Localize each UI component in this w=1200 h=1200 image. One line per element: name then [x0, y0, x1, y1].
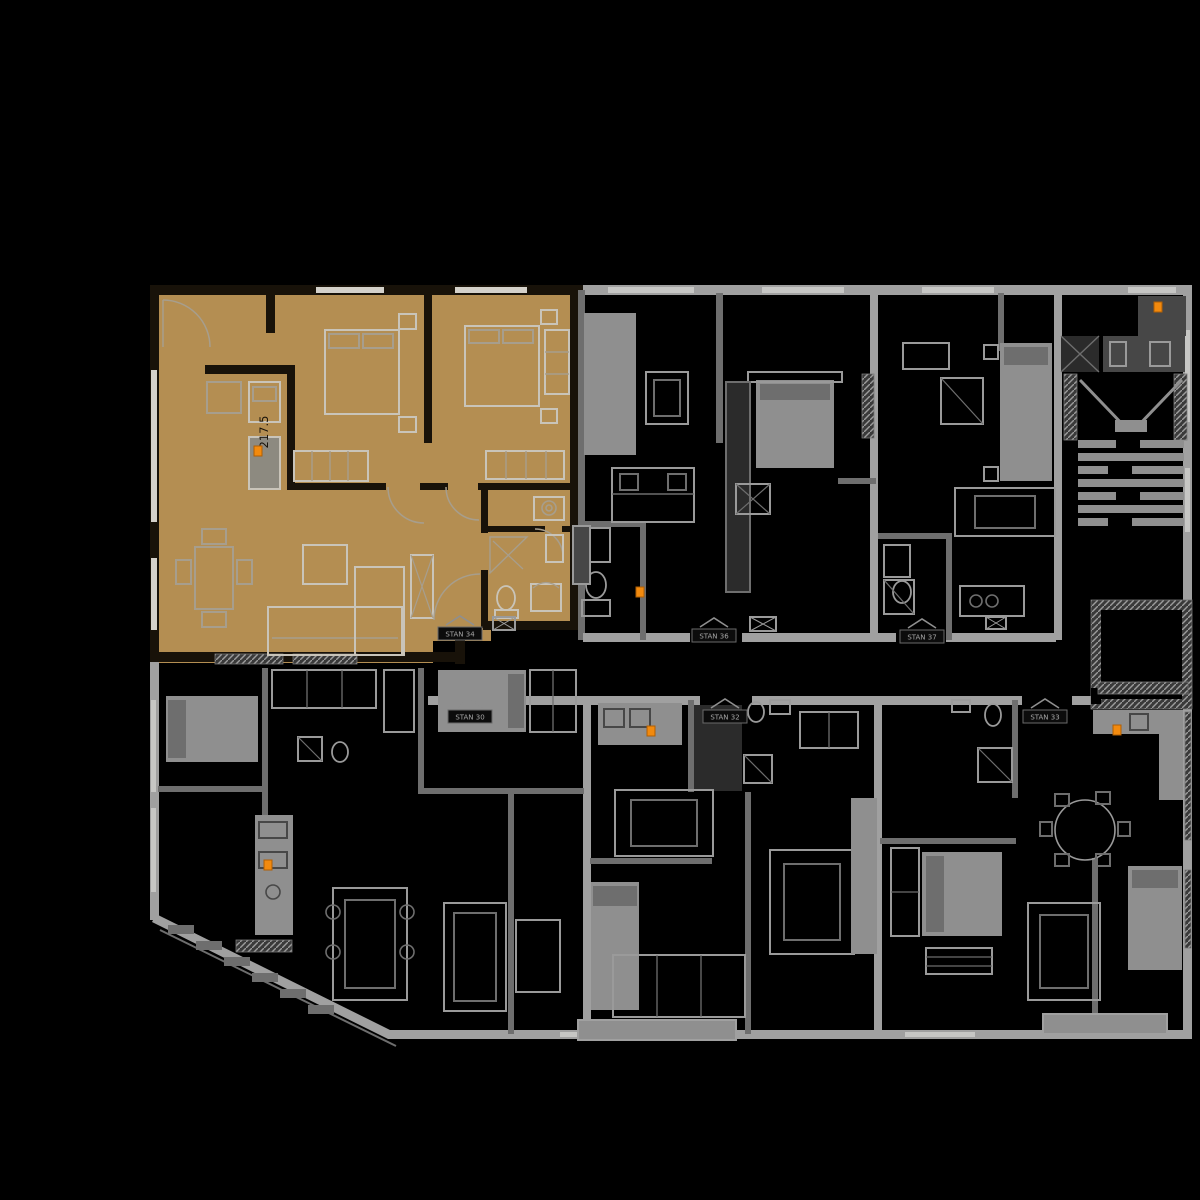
- nightstand: [984, 467, 998, 481]
- dining-table-inner: [631, 800, 697, 846]
- area-label: 217.5: [257, 416, 271, 449]
- floor-plan-canvas: 217.5 STAN 34STAN 36STAN 37STAN 30STAN 3…: [0, 0, 1200, 1200]
- terrace-slab: [1043, 1014, 1167, 1034]
- tan-window-left-2: [151, 558, 157, 630]
- plaque-label: STAN 37: [907, 634, 936, 642]
- tan-wall-bedrooms-a: [294, 483, 386, 490]
- partition: [946, 533, 952, 640]
- sofa-inner: [454, 913, 496, 1001]
- stair-side-hatch: [1064, 374, 1077, 440]
- bed-pillow: [593, 886, 637, 906]
- dining-chair: [1118, 822, 1130, 836]
- partition: [838, 478, 876, 484]
- tan-wall-bedrooms-b: [420, 483, 448, 490]
- marker-bottom-left-kitchen[interactable]: [264, 860, 272, 870]
- marker-highlight-kitchen[interactable]: [254, 446, 262, 456]
- closet: [903, 343, 949, 369]
- plaque-label: STAN 32: [710, 714, 739, 722]
- stair-side-hatch: [1174, 374, 1187, 440]
- plaque-label: STAN 34: [445, 631, 475, 639]
- shower-diag: [298, 737, 322, 761]
- partition: [262, 668, 268, 818]
- stove: [620, 474, 638, 490]
- tan-wall-bath-left-a: [481, 483, 488, 533]
- stair-step-notch: [1108, 518, 1132, 526]
- sink: [668, 474, 686, 490]
- bed-pillow: [760, 384, 830, 400]
- shower-diag: [978, 748, 1012, 782]
- plaque-label: STAN 30: [455, 714, 484, 722]
- tan-wall-entry: [455, 640, 465, 664]
- table-round: [1055, 800, 1115, 860]
- balcony-rail: [1185, 870, 1191, 948]
- exterior-step: [224, 957, 250, 966]
- plaque-label: STAN 33: [1030, 714, 1059, 722]
- bed-pillow: [508, 674, 524, 728]
- shower-diag: [744, 755, 772, 783]
- window-bottom: [905, 1032, 975, 1037]
- balcony-rail: [1098, 682, 1188, 694]
- tan-wall-bath-left-b: [481, 570, 488, 628]
- plaque-label: STAN 36: [699, 633, 729, 641]
- bed-pillow: [1004, 347, 1048, 365]
- corridor-wall-top: [583, 633, 1056, 642]
- nightstand: [984, 345, 998, 359]
- bed-pillow: [168, 700, 186, 758]
- stair-center-block: [1115, 420, 1147, 432]
- tan-wall-hall: [205, 365, 293, 374]
- unit-plaque-unit-top-middle: STAN 36: [692, 618, 736, 642]
- kitchen-counter: [612, 468, 694, 522]
- partition: [590, 858, 712, 864]
- dining-table-inner: [654, 380, 680, 416]
- sofa: [1028, 903, 1100, 1000]
- dining-chair: [1096, 854, 1110, 866]
- tan-wall-bedroom-divider: [424, 288, 432, 443]
- window-top: [1128, 287, 1176, 293]
- dining-table-inner: [975, 496, 1035, 528]
- window-right: [1185, 468, 1190, 532]
- partition: [878, 533, 950, 539]
- tan-window-top-1: [316, 287, 384, 293]
- marker-stair-vestibule[interactable]: [1154, 302, 1162, 312]
- burner: [986, 595, 998, 607]
- stair-step: [1078, 453, 1184, 461]
- partition: [998, 293, 1004, 351]
- dining-chair: [1040, 822, 1052, 836]
- partition: [424, 788, 584, 794]
- exterior-step: [280, 989, 306, 998]
- marker-bottom-middle-kitchen[interactable]: [647, 726, 655, 736]
- window-left: [151, 700, 156, 792]
- sofa: [770, 850, 854, 954]
- marker-bottom-right-kitchen[interactable]: [1113, 725, 1121, 735]
- party-wall: [870, 293, 878, 640]
- exterior-step: [252, 973, 278, 982]
- radiator: [926, 948, 992, 974]
- tan-window-top-2: [455, 287, 527, 293]
- shaft-hatch: [862, 374, 874, 438]
- bath-fixture: [582, 600, 610, 616]
- plaque-chevron-icon: [700, 618, 728, 627]
- stair-step: [1078, 479, 1184, 487]
- partition: [880, 838, 1016, 844]
- toilet-bowl: [985, 704, 1001, 726]
- terrace-slab: [578, 1020, 736, 1040]
- toilet-bowl: [332, 742, 348, 762]
- wardrobe-diag: [941, 378, 983, 424]
- sofa-chaise: [851, 798, 877, 954]
- wardrobe: [272, 670, 376, 708]
- stair-step-notch: [1116, 492, 1140, 500]
- stair-step-notch: [1108, 466, 1132, 474]
- marker-top-middle-kitchen[interactable]: [636, 587, 644, 597]
- window-top: [922, 287, 994, 293]
- sofa-inner: [784, 864, 840, 940]
- partition: [716, 293, 723, 443]
- tan-wall-hall-stub: [266, 285, 275, 333]
- stair-step: [1078, 505, 1184, 513]
- exterior-step: [168, 925, 194, 934]
- corridor-duct: [573, 526, 590, 584]
- bed-pillow: [1132, 870, 1178, 888]
- party-wall: [578, 290, 585, 640]
- partition: [418, 668, 424, 794]
- tan-wall-bath-bottom: [483, 621, 578, 630]
- stair-step-notch: [1116, 440, 1140, 448]
- party-wall: [1054, 293, 1062, 640]
- sofa: [584, 313, 636, 455]
- kitchen-counter: [1159, 734, 1183, 800]
- entry-mat: [236, 940, 292, 952]
- exterior-step: [308, 1005, 334, 1014]
- partition: [640, 521, 646, 640]
- desk: [384, 670, 414, 732]
- corridor-wall-bottom: [428, 696, 1190, 705]
- balcony-rail: [1185, 712, 1191, 840]
- plaque-chevron-icon: [908, 619, 936, 628]
- side-table: [516, 920, 560, 992]
- hall-strip: [726, 382, 750, 592]
- tan-wall-bedrooms-c: [478, 483, 574, 490]
- tan-window-left-1: [151, 370, 157, 522]
- sofa-inner: [1040, 915, 1088, 988]
- exterior-step: [196, 941, 222, 950]
- partition: [158, 786, 266, 792]
- party-wall-lower: [583, 700, 591, 1030]
- floor-plan-svg: 217.5 STAN 34STAN 36STAN 37STAN 30STAN 3…: [0, 0, 1200, 1200]
- dining-table-inner: [345, 900, 395, 988]
- unit-plaque-unit-top-right: STAN 37: [900, 619, 944, 643]
- burner: [970, 595, 982, 607]
- partition: [1092, 858, 1098, 1034]
- partition: [688, 700, 694, 792]
- bed-pillow: [926, 856, 944, 932]
- partition: [508, 794, 514, 1034]
- window-top: [608, 287, 694, 293]
- window-left: [151, 808, 156, 892]
- window-top: [762, 287, 844, 293]
- dining-chair: [1055, 854, 1069, 866]
- dining-chair: [1055, 794, 1069, 806]
- bath-fixture: [884, 545, 910, 577]
